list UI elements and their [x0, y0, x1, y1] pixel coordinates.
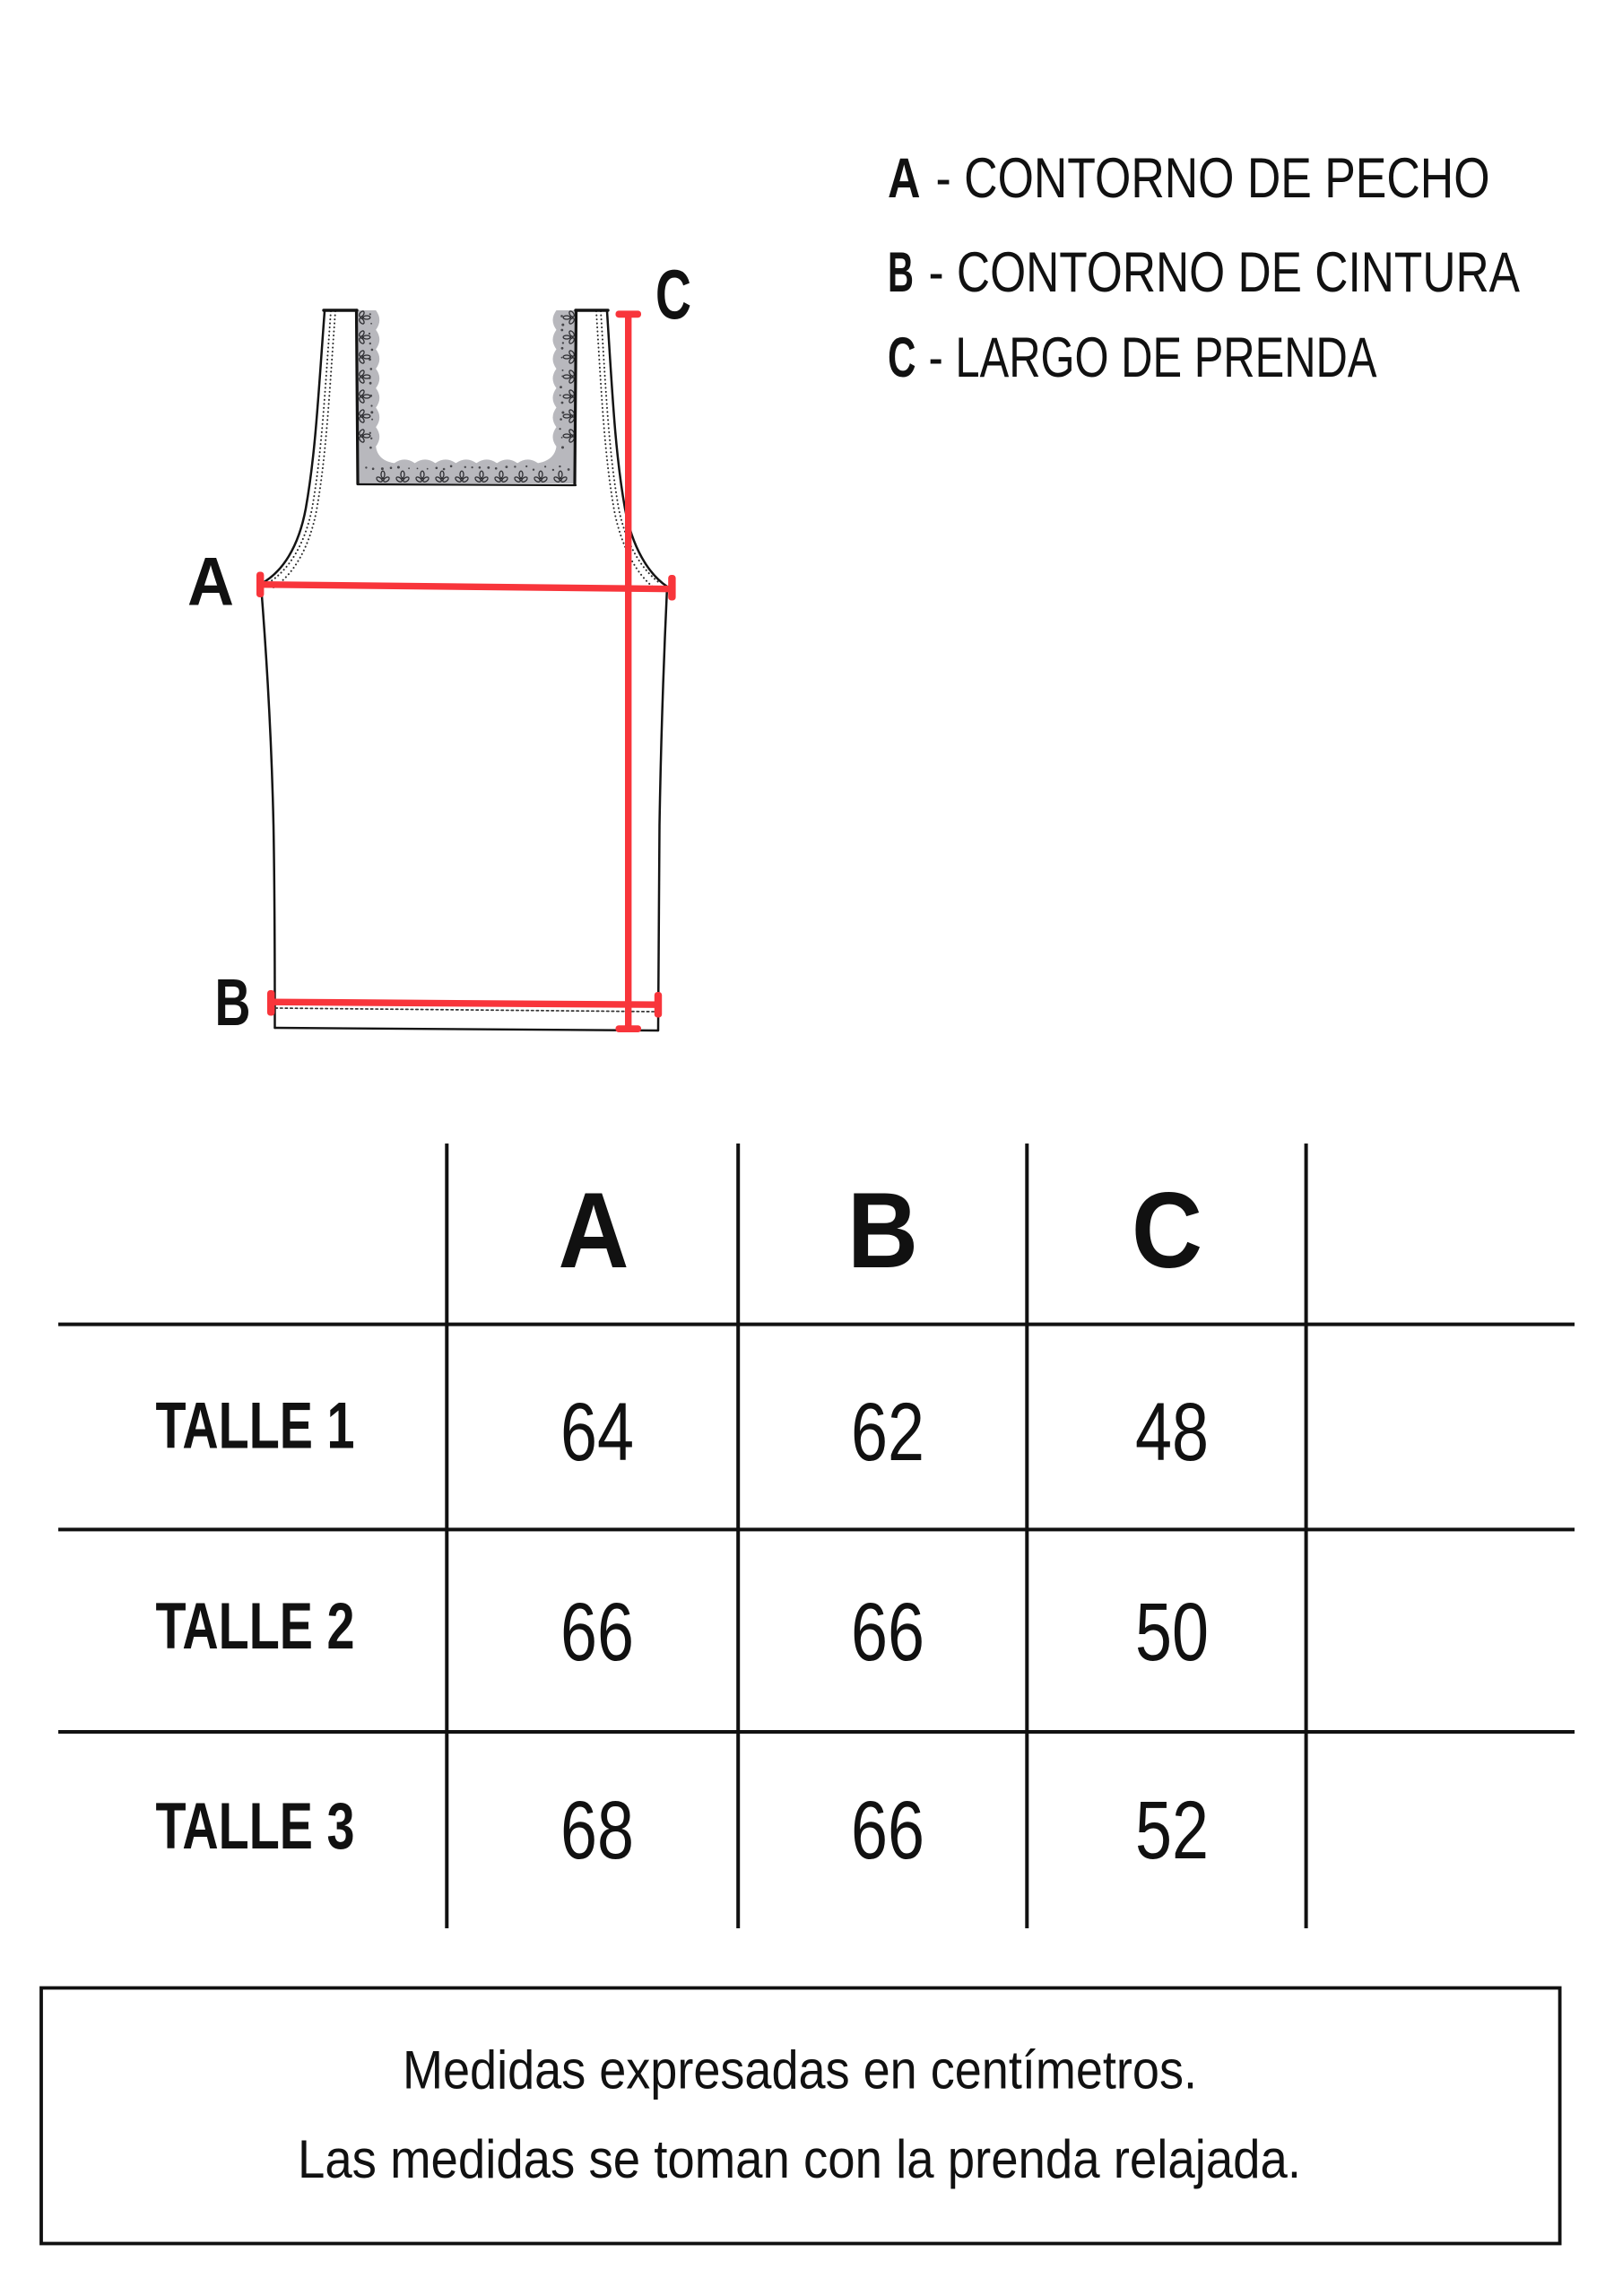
- svg-text:52: 52: [1135, 1785, 1209, 1876]
- svg-text:48: 48: [1135, 1387, 1209, 1478]
- svg-text:Medidas expresadas en centímet: Medidas expresadas en centímetros.: [403, 2039, 1197, 2100]
- svg-text:TALLE 2: TALLE 2: [156, 1590, 355, 1663]
- svg-text:C: C: [655, 255, 691, 334]
- svg-text:TALLE 1: TALLE 1: [156, 1390, 355, 1463]
- svg-text:Las medidas se toman con la pr: Las medidas se toman con la prenda relaj…: [298, 2128, 1301, 2189]
- svg-text:66: 66: [851, 1785, 924, 1876]
- svg-text:66: 66: [851, 1587, 924, 1678]
- svg-text:50: 50: [1135, 1587, 1209, 1678]
- svg-text:62: 62: [851, 1387, 924, 1478]
- svg-text:B: B: [888, 241, 914, 304]
- svg-text:64: 64: [560, 1387, 634, 1478]
- svg-text:- CONTORNO DE CINTURA: - CONTORNO DE CINTURA: [929, 241, 1521, 304]
- svg-text:A: A: [559, 1170, 629, 1291]
- svg-text:B: B: [847, 1170, 918, 1291]
- svg-text:A: A: [187, 544, 234, 621]
- svg-text:68: 68: [560, 1785, 634, 1876]
- svg-text:66: 66: [560, 1587, 634, 1678]
- svg-text:C: C: [1132, 1170, 1202, 1291]
- svg-text:C: C: [888, 326, 916, 389]
- svg-text:A: A: [888, 147, 921, 210]
- svg-text:- LARGO DE PRENDA: - LARGO DE PRENDA: [929, 326, 1377, 389]
- svg-text:B: B: [215, 965, 251, 1039]
- svg-text:TALLE 3: TALLE 3: [156, 1790, 355, 1863]
- svg-text:- CONTORNO DE PECHO: - CONTORNO DE PECHO: [936, 147, 1490, 210]
